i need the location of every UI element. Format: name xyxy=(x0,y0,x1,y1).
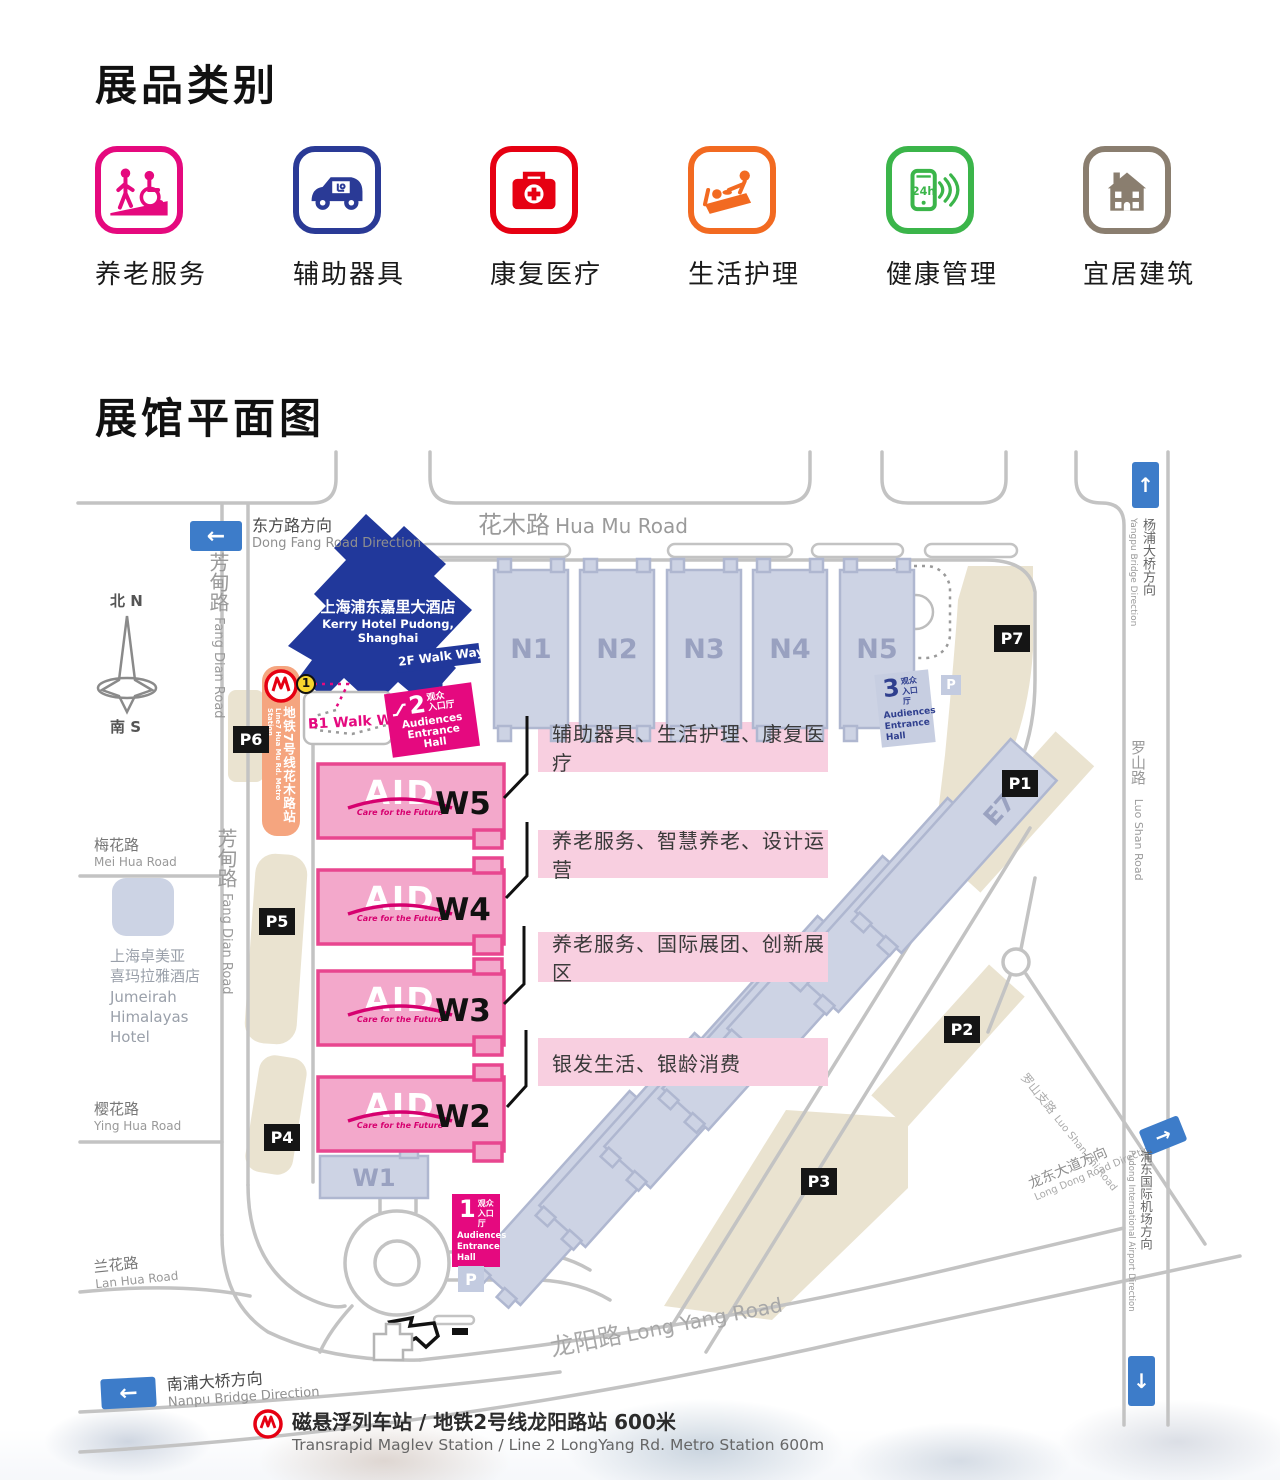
map-title: 展馆平面图 xyxy=(95,385,325,446)
svg-text:N3: N3 xyxy=(683,634,724,665)
svg-text:E5: E5 xyxy=(850,905,893,948)
zone-brackets xyxy=(504,716,527,1107)
tan-area-east xyxy=(935,566,1033,858)
parking-p3: P3 xyxy=(801,1168,837,1195)
zone-label-2: 养老服务、智慧养老、设计运营 xyxy=(538,829,828,879)
airport-down-arrow-icon: ↓ xyxy=(1128,1356,1155,1406)
parking-p4: P4 xyxy=(264,1124,300,1151)
tan-area-p4 xyxy=(243,1053,309,1177)
lanhua-road-label: 兰花路 Lan Hua Road xyxy=(92,1248,179,1292)
expo-floorplan-page: 展品类别 养老服务 辅助器具 xyxy=(0,0,1280,1480)
category-rehab-medical: 康复医疗 xyxy=(490,146,650,291)
hall-n3: N3 xyxy=(667,559,741,741)
svg-text:N4: N4 xyxy=(769,634,810,665)
jumeirah-hotel-block xyxy=(112,878,174,936)
hall-w2-label: W2 xyxy=(428,1099,498,1135)
zone-bands xyxy=(538,722,828,1086)
svg-text:W1: W1 xyxy=(352,1164,395,1192)
category-label: 宜居建筑 xyxy=(1083,254,1243,291)
huamu-road-label: 花木路 Hua Mu Road xyxy=(478,505,688,540)
life-care-icon xyxy=(688,146,776,234)
category-label: 健康管理 xyxy=(886,254,1046,291)
parking-p1: P1 xyxy=(1002,770,1038,797)
parking-p7: P7 xyxy=(994,625,1030,652)
hall-w4-label: W4 xyxy=(428,892,498,928)
assist-device-icon xyxy=(293,146,381,234)
hall-w5-label: W5 xyxy=(428,786,498,822)
tan-area-p1 xyxy=(942,731,1094,892)
hall-n2: N2 xyxy=(580,559,654,741)
svg-text:N1: N1 xyxy=(510,634,551,665)
metro-logo-icon xyxy=(266,671,296,701)
compass-icon xyxy=(98,616,156,712)
elder-service-icon xyxy=(95,146,183,234)
yinghua-road-label: 樱花路 Ying Hua Road xyxy=(94,1098,181,1133)
category-livable-building: 宜居建筑 xyxy=(1083,146,1243,291)
rehab-medical-icon xyxy=(490,146,578,234)
entrance-2: 2 观众入口厅 AudiencesEntrance Hall xyxy=(384,682,480,758)
hall-n4: N4 xyxy=(753,559,827,741)
dongfang-left-arrow-icon: ← xyxy=(190,521,242,551)
maglev-note-cn: 磁悬浮列车站 / 地铁2号线龙阳路站 600米 xyxy=(292,1406,676,1435)
parking-icon-entrance1: P xyxy=(458,1266,484,1292)
parking-p2: P2 xyxy=(944,1016,980,1043)
phone-24h-badge: 24h xyxy=(912,185,935,198)
svg-text:N2: N2 xyxy=(596,634,637,665)
parking-icon-entrance3: P xyxy=(941,675,961,695)
hall-w1: W1 xyxy=(320,1147,428,1198)
category-life-care: 生活护理 xyxy=(688,146,848,291)
entrance-1: 1 观众入口厅 AudiencesEntranceHall xyxy=(452,1194,500,1267)
zone-label-4: 银发生活、银龄消费 xyxy=(538,1037,828,1087)
category-health-manage: 24h 健康管理 xyxy=(886,146,1046,291)
hall-n1: N1 xyxy=(494,559,568,741)
dropoff-loop xyxy=(882,566,950,658)
jumeirah-hotel-label: 上海卓美亚 喜玛拉雅酒店 Jumeirah Himalayas Hotel xyxy=(110,946,200,1047)
zone-label-1: 辅助器具、生活护理、康复医疗 xyxy=(538,722,828,772)
livable-building-icon xyxy=(1083,146,1171,234)
entrance-3: 3 观众入口厅 AudiencesEntranceHall xyxy=(874,669,935,747)
category-label: 辅助器具 xyxy=(293,254,453,291)
escalator-icon xyxy=(390,701,408,717)
svg-text:N5: N5 xyxy=(856,634,897,665)
zone-label-3: 养老服务、国际展团、创新展区 xyxy=(538,932,828,982)
yangpu-direction-label: 杨浦大桥方向 Yangpu Bridge Direction xyxy=(1128,518,1157,688)
tan-area-p3 xyxy=(664,1110,908,1320)
exit-1-badge: 1 xyxy=(299,676,313,692)
gate-arrow-shape xyxy=(390,1318,438,1347)
tan-area-p5 xyxy=(243,852,308,1045)
fangdian-road-label-upper: 芳甸路 Fang Dian Road xyxy=(204,552,233,792)
fangdian-road-label-lower: 芳甸路 Fang Dian Road xyxy=(212,828,241,1068)
category-assist-device: 辅助器具 xyxy=(293,146,453,291)
categories-title: 展品类别 xyxy=(95,52,279,113)
compass-north-label: 北 N xyxy=(110,590,143,611)
dongfang-direction-label: 东方路方向 Dong Fang Road Direction xyxy=(252,512,421,551)
walkway-2f-label: 2F Walk Way xyxy=(397,645,478,669)
compass-south-label: 南 S xyxy=(110,716,141,737)
svg-text:E2: E2 xyxy=(662,1082,705,1125)
category-label: 生活护理 xyxy=(688,254,848,291)
metro-walk-path-pink xyxy=(314,684,348,708)
meihua-road-label: 梅花路 Mei Hua Road xyxy=(94,834,177,869)
category-label: 康复医疗 xyxy=(490,254,650,291)
category-elder-service: 养老服务 xyxy=(95,146,255,291)
yangpu-up-arrow-icon: ↑ xyxy=(1132,462,1159,508)
svg-text:E1: E1 xyxy=(597,1140,640,1183)
parking-p5: P5 xyxy=(259,908,295,935)
airport-direction-label: 浦东国际机场方向 Pudong International Airport Di… xyxy=(1126,1150,1155,1340)
kerry-hotel-label: 上海浦东嘉里大酒店 Kerry Hotel Pudong, Shanghai xyxy=(294,596,482,645)
tan-area-p2 xyxy=(871,965,1024,1128)
hall-w3-label: W3 xyxy=(428,993,498,1029)
parking-p6: P6 xyxy=(233,726,269,753)
maglev-note-en: Transrapid Maglev Station / Line 2 LongY… xyxy=(292,1436,824,1454)
health-manage-icon: 24h xyxy=(886,146,974,234)
luoshan-road-label: 罗山路 Luo Shan Road xyxy=(1128,740,1149,900)
nanpu-left-arrow-icon: ← xyxy=(100,1377,156,1410)
category-label: 养老服务 xyxy=(95,254,255,291)
svg-text:E6: E6 xyxy=(915,847,958,890)
